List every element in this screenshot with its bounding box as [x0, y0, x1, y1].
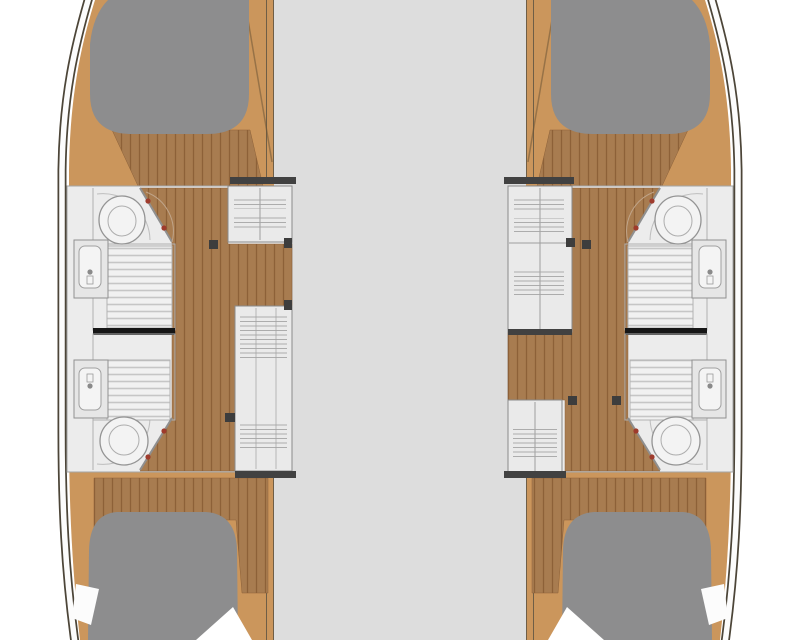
- floor-plan-canvas: [0, 0, 800, 640]
- wardrobe-left: [235, 306, 292, 471]
- bulkhead-bar-top-left: [230, 177, 296, 184]
- berth-aft-right: [630, 360, 693, 420]
- cabinet-tall-right: [508, 186, 572, 332]
- bow-cushion-right: [551, 0, 710, 134]
- bulkhead-bar-top-right: [504, 177, 574, 184]
- cabinet-lower-right: [508, 400, 562, 477]
- left-hull-interior: [67, 177, 296, 478]
- bulkhead-bar-bottom-left: [235, 471, 296, 478]
- toilet-aft-left: [100, 417, 148, 465]
- cabinet-base-bar-right: [508, 329, 572, 335]
- bow-cushion-left: [90, 0, 249, 134]
- toilet-fore-right: [655, 196, 701, 244]
- right-hull-interior: [504, 177, 733, 478]
- berth-fore-right: [628, 246, 693, 328]
- toilet-fore-left: [99, 196, 145, 244]
- sink-aft-right: [692, 360, 726, 418]
- toilet-aft-right: [652, 417, 700, 465]
- berth-fore-left: [107, 246, 172, 328]
- sink-aft-left: [74, 360, 108, 418]
- stern-cushion-right: [562, 512, 712, 640]
- bulkhead-bar-bottom-right: [504, 471, 566, 478]
- bridge-deck: [272, 0, 528, 640]
- cabinet-upper-left: [228, 186, 292, 242]
- door-hinge-dot: [145, 198, 150, 203]
- sink-fore-right: [692, 240, 726, 298]
- stern-cushion-left: [88, 512, 238, 640]
- sink-fore-left: [74, 240, 108, 298]
- berth-aft-left: [107, 360, 170, 420]
- catamaran-floor-plan: [0, 0, 800, 640]
- door-hinge-dot: [161, 225, 166, 230]
